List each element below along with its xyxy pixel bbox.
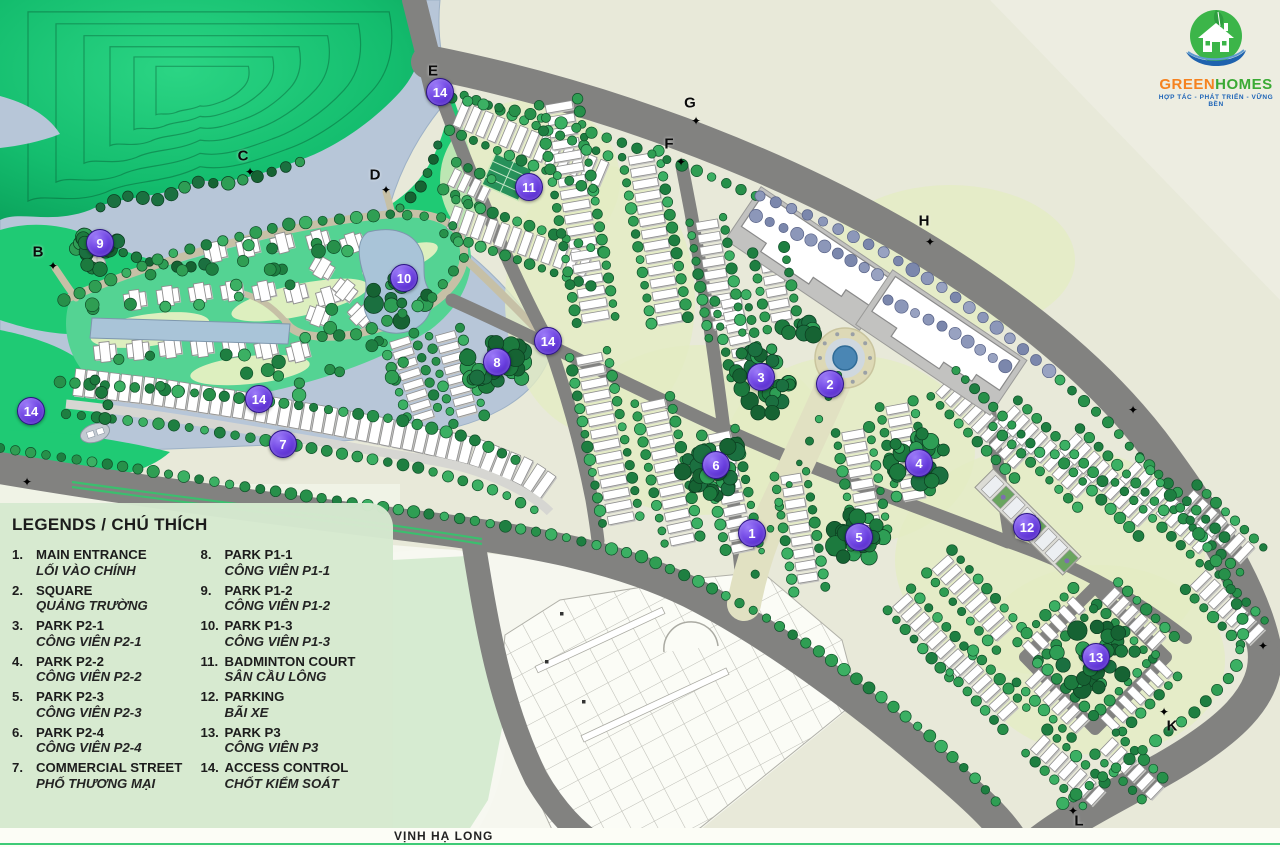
legend-item-label-en: PARK P3 (225, 725, 281, 741)
logo-wordmark: GREENHOMES (1156, 77, 1276, 93)
legend-item-label-vi: QUẢNG TRƯỜNG (36, 598, 197, 614)
legend-item-number: 13. (201, 725, 225, 741)
legend-item-11: 11.BADMINTON COURTSÂN CẦU LÔNG (201, 654, 386, 685)
gate-letter-D: D (370, 167, 381, 184)
gate-cross-icon: ✦ (381, 184, 391, 196)
legend-item-label-en: PARK P2-1 (36, 618, 104, 634)
legend-column-2: 8.PARK P1-1CÔNG VIÊN P1-19.PARK P1-2CÔNG… (201, 547, 386, 796)
legend-item-8: 8.PARK P1-1CÔNG VIÊN P1-1 (201, 547, 386, 578)
legend-item-number: 6. (12, 725, 36, 741)
legend-panel: LEGENDS / CHÚ THÍCH 1.MAIN ENTRANCELỐI V… (0, 503, 393, 830)
map-marker-11: 11 (515, 173, 543, 201)
legend-item-9: 9.PARK P1-2CÔNG VIÊN P1-2 (201, 583, 386, 614)
legend-item-label-en: COMMERCIAL STREET (36, 760, 182, 776)
legend-item-number: 5. (12, 689, 36, 705)
legend-item-label-en: SQUARE (36, 583, 92, 599)
gate-letter-L: L (1074, 813, 1083, 830)
map-marker-9: 9 (86, 229, 114, 257)
legend-item-number: 4. (12, 654, 36, 670)
legend-item-2: 2.SQUAREQUẢNG TRƯỜNG (12, 583, 197, 614)
map-marker-4: 4 (905, 449, 933, 477)
legend-item-label-vi: CÔNG VIÊN P2-2 (36, 669, 197, 685)
gate-cross-icon: ✦ (48, 260, 58, 272)
bay-strip: VỊNH HẠ LONG (0, 828, 1280, 847)
legend-item-label-en: PARK P2-4 (36, 725, 104, 741)
legend-item-label-en: PARK P1-1 (225, 547, 293, 563)
legend-item-label-en: ACCESS CONTROL (225, 760, 349, 776)
legend-item-label-vi: CÔNG VIÊN P2-1 (36, 634, 197, 650)
legend-item-number: 3. (12, 618, 36, 634)
bay-label: VỊNH HẠ LONG (394, 829, 493, 843)
legend-item-5: 5.PARK P2-3CÔNG VIÊN P2-3 (12, 689, 197, 720)
legend-item-12: 12.PARKINGBÃI XE (201, 689, 386, 720)
legend-item-label-vi: SÂN CẦU LÔNG (225, 669, 386, 685)
legend-item-label-vi: PHỐ THƯƠNG MẠI (36, 776, 197, 792)
legend-item-label-en: MAIN ENTRANCE (36, 547, 147, 563)
gate-letter-C: C (238, 148, 249, 165)
gate-letter-G: G (684, 95, 696, 112)
logo-tagline: HỢP TÁC - PHÁT TRIỂN - VỮNG BỀN (1156, 94, 1276, 108)
legend-item-number: 12. (201, 689, 225, 705)
map-marker-14: 14 (17, 397, 45, 425)
map-marker-2: 2 (816, 370, 844, 398)
legend-item-number: 11. (201, 654, 225, 670)
legend-item-13: 13.PARK P3CÔNG VIÊN P3 (201, 725, 386, 756)
legend-item-4: 4.PARK P2-2CÔNG VIÊN P2-2 (12, 654, 197, 685)
junction-cross-icon: ✦ (1128, 404, 1138, 416)
legend-item-number: 7. (12, 760, 36, 776)
gate-cross-icon: ✦ (676, 156, 686, 168)
legend-item-number: 10. (201, 618, 225, 634)
legend-item-14: 14.ACCESS CONTROLCHỐT KIỂM SOÁT (201, 760, 386, 791)
map-marker-1: 1 (738, 519, 766, 547)
legend-item-label-en: BADMINTON COURT (225, 654, 356, 670)
gate-cross-icon: ✦ (245, 166, 255, 178)
legend-item-label-vi: CÔNG VIÊN P3 (225, 740, 386, 756)
legend-item-number: 9. (201, 583, 225, 599)
legend-item-number: 14. (201, 760, 225, 776)
logo-word-homes: HOMES (1215, 76, 1273, 93)
legend-item-10: 10.PARK P1-3CÔNG VIÊN P1-3 (201, 618, 386, 649)
logo-word-green: GREEN (1159, 76, 1215, 93)
greenhomes-logo: GREENHOMES HỢP TÁC - PHÁT TRIỂN - VỮNG B… (1156, 8, 1276, 108)
legend-item-number: 2. (12, 583, 36, 599)
legend-item-6: 6.PARK P2-4CÔNG VIÊN P2-4 (12, 725, 197, 756)
legend-item-1: 1.MAIN ENTRANCELỐI VÀO CHÍNH (12, 547, 197, 578)
bay-divider-line (0, 843, 1280, 846)
gate-cross-icon: ✦ (1159, 706, 1169, 718)
map-marker-12: 12 (1013, 513, 1041, 541)
legend-item-label-vi: CHỐT KIỂM SOÁT (225, 776, 386, 792)
legend-item-label-en: PARK P2-2 (36, 654, 104, 670)
legend-column-1: 1.MAIN ENTRANCELỐI VÀO CHÍNH2.SQUAREQUẢN… (12, 547, 197, 796)
junction-cross-icon: ✦ (22, 476, 32, 488)
map-marker-14: 14 (245, 385, 273, 413)
map-marker-6: 6 (702, 451, 730, 479)
map-marker-14: 14 (426, 78, 454, 106)
legend-item-label-en: PARK P2-3 (36, 689, 104, 705)
legend-item-label-vi: CÔNG VIÊN P1-2 (225, 598, 386, 614)
gate-letter-H: H (919, 213, 930, 230)
map-marker-10: 10 (390, 264, 418, 292)
legend-item-label-en: PARK P1-2 (225, 583, 293, 599)
junction-cross-icon: ✦ (1258, 640, 1268, 652)
legend-item-label-en: PARK P1-3 (225, 618, 293, 634)
legend-item-3: 3.PARK P2-1CÔNG VIÊN P2-1 (12, 618, 197, 649)
legend-item-label-vi: CÔNG VIÊN P1-3 (225, 634, 386, 650)
legend-item-number: 8. (201, 547, 225, 563)
map-marker-13: 13 (1082, 643, 1110, 671)
map-marker-3: 3 (747, 363, 775, 391)
gate-letter-E: E (428, 63, 438, 80)
legend-title: LEGENDS / CHÚ THÍCH (12, 515, 385, 535)
legend-item-label-vi: BÃI XE (225, 705, 386, 721)
legend-item-label-vi: LỐI VÀO CHÍNH (36, 563, 197, 579)
greenhomes-logo-icon (1174, 8, 1258, 72)
map-marker-5: 5 (845, 523, 873, 551)
gate-letter-K: K (1167, 718, 1178, 735)
gate-cross-icon: ✦ (925, 236, 935, 248)
legend-item-label-vi: CÔNG VIÊN P2-3 (36, 705, 197, 721)
legend-item-label-vi: CÔNG VIÊN P1-1 (225, 563, 386, 579)
master-plan-screenshot: LEGENDS / CHÚ THÍCH 1.MAIN ENTRANCELỐI V… (0, 0, 1280, 847)
map-marker-14: 14 (534, 327, 562, 355)
gate-letter-B: B (33, 244, 44, 261)
legend-item-label-en: PARKING (225, 689, 285, 705)
legend-item-number: 1. (12, 547, 36, 563)
legend-item-7: 7.COMMERCIAL STREETPHỐ THƯƠNG MẠI (12, 760, 197, 791)
map-marker-7: 7 (269, 430, 297, 458)
gate-letter-F: F (664, 136, 673, 153)
legend-item-label-vi: CÔNG VIÊN P2-4 (36, 740, 197, 756)
map-marker-8: 8 (483, 348, 511, 376)
gate-cross-icon: ✦ (691, 115, 701, 127)
